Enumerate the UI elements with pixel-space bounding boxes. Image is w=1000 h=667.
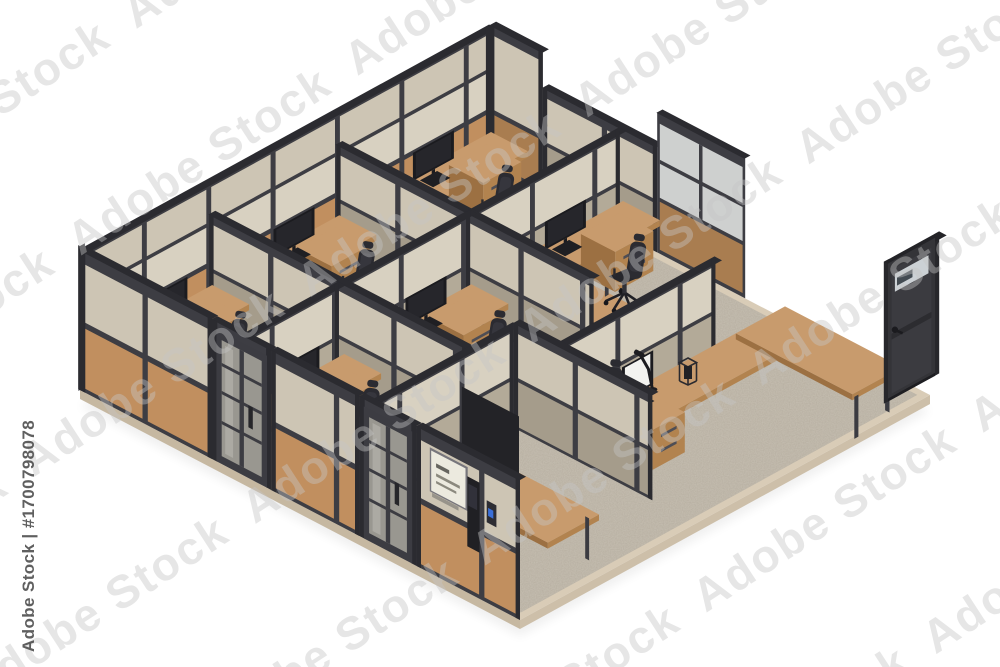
isometric-office-render: Adobe StockAdobe StockAdobe StockAdobe S… bbox=[0, 0, 1000, 667]
watermark-text: Adobe Stock bbox=[785, 0, 1000, 173]
watermark-id: Adobe Stock | #1700798078 bbox=[19, 420, 38, 652]
watermark-text: Adobe Stock bbox=[913, 454, 1000, 663]
watermark-text: Adobe Stock bbox=[185, 545, 468, 667]
stock-image: Adobe StockAdobe StockAdobe StockAdobe S… bbox=[0, 0, 1000, 667]
watermark-text: Adobe Stock bbox=[564, 0, 847, 126]
watermark-text: Adobe Stock bbox=[0, 9, 119, 218]
